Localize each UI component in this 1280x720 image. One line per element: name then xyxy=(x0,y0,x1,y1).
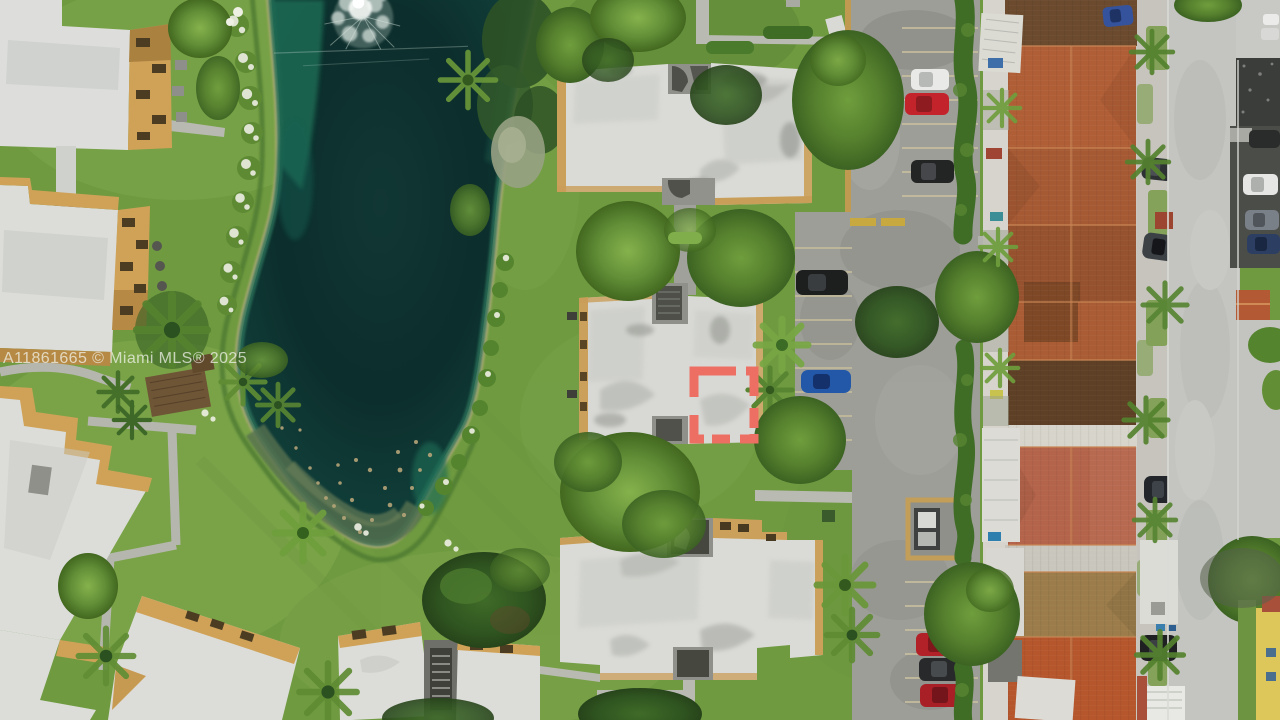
svg-text:A11861665 © Miami MLS® 2025: A11861665 © Miami MLS® 2025 xyxy=(3,350,247,367)
